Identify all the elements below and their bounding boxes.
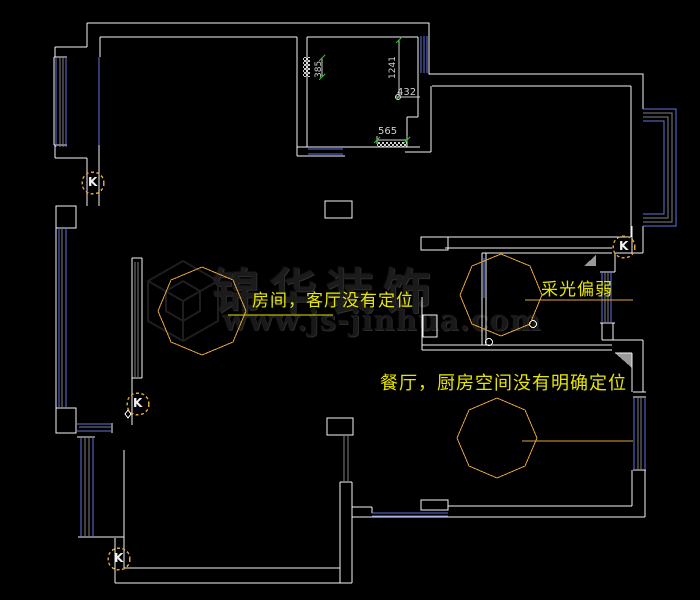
k-marker-label: K <box>114 551 123 565</box>
dimension-565: 565 <box>378 126 397 137</box>
dimension-385: 385 <box>314 61 324 78</box>
note-dining-kitchen-undefined: 餐厅，厨房空间没有明确定位 <box>380 369 627 395</box>
cad-floorplan-screenshot: 锦华装饰 www.js-jinhua.com <box>0 0 700 600</box>
note-dim-lighting: 采光偏弱 <box>541 275 613 300</box>
k-marker-label: K <box>133 396 142 410</box>
k-marker-label: K <box>619 239 628 253</box>
note-room-undefined: 房间，客厅没有定位 <box>252 286 414 311</box>
dimension-432: 432 <box>397 87 416 98</box>
dimension-1241: 1241 <box>388 56 398 79</box>
k-marker-label: K <box>88 175 97 189</box>
annotation-layer: 房间，客厅没有定位 采光偏弱 餐厅，厨房空间没有明确定位 385 1241 43… <box>0 0 700 600</box>
